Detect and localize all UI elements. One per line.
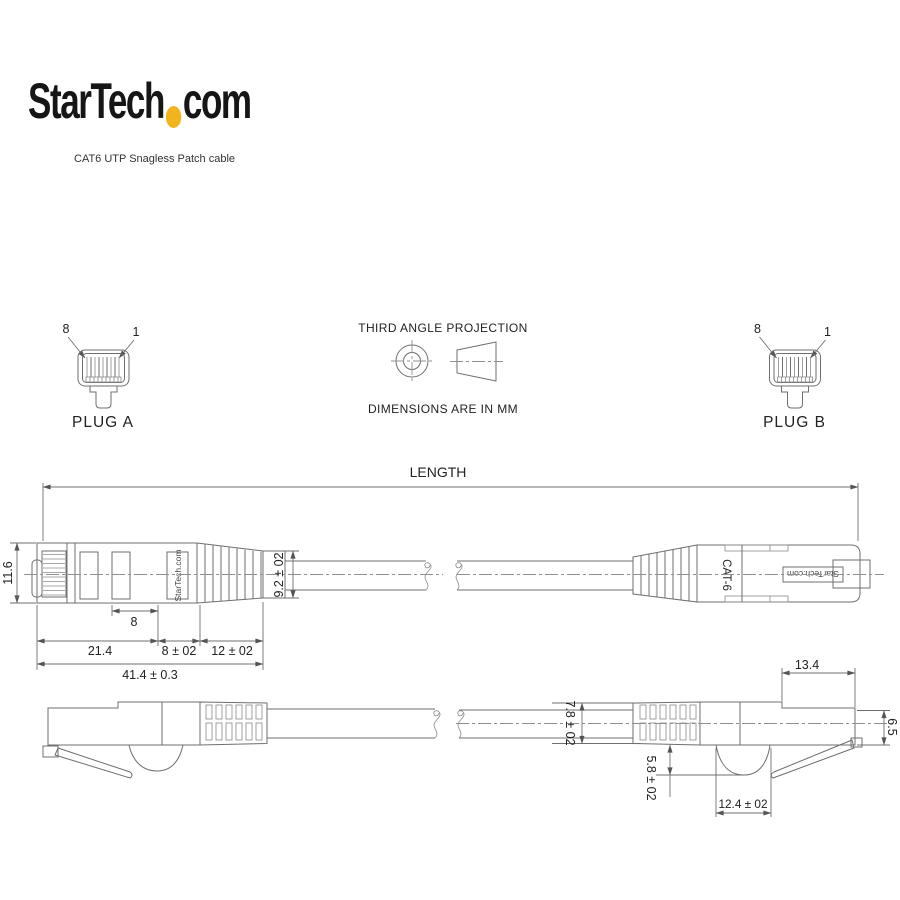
- height-label: 11.6: [1, 561, 15, 584]
- latch-arm: [771, 740, 854, 778]
- plug-b-front-view: 8 1: [754, 322, 831, 431]
- boot-outline: [200, 702, 267, 745]
- cable-break-symbol: [458, 711, 464, 738]
- cable-bottom-view-right: 13.4 7.8 ± 02 5.8 ± 02 12.4 ± 02 6.5: [456, 658, 899, 817]
- body-length-label: 21.4: [88, 644, 112, 658]
- side-plug-marking: StarTech.com: [173, 550, 183, 602]
- cable-bottom-view-left: [43, 702, 440, 778]
- plug-a-pin1-label: 1: [133, 325, 140, 339]
- top-plug-marking: StarTech.com: [787, 569, 839, 579]
- hump-width-label: 12.4 ± 02: [718, 797, 767, 811]
- cable-break-symbol: [456, 563, 462, 590]
- technical-drawing: 8 1: [0, 0, 900, 900]
- end-height-label: 6.5: [885, 718, 899, 735]
- plug-b-latch-tab: [782, 386, 809, 408]
- length-label: LENGTH: [410, 464, 467, 480]
- plug-a-pin8-leader: [68, 337, 85, 358]
- plug-b-pins: [779, 357, 811, 377]
- body-slot-2: [112, 552, 130, 599]
- plug-b-label: PLUG B: [763, 414, 826, 431]
- plug-a-contact-band: [86, 377, 121, 382]
- cable-break-symbol: [425, 563, 431, 590]
- plug-a-pin1-leader: [119, 340, 134, 358]
- latch-depth-label: 5.8 ± 02: [644, 755, 658, 800]
- plug-a-label: PLUG A: [72, 414, 134, 431]
- boot-length-label: 12 ± 02: [211, 644, 253, 658]
- plug-a-contact-ticks: [90, 377, 118, 382]
- body-collar: [67, 543, 75, 603]
- dimensions-note: DIMENSIONS ARE IN MM: [368, 402, 518, 416]
- cat6-marking: CAT-6: [720, 559, 732, 591]
- plug-a-pins: [87, 357, 119, 377]
- inner-width-label: 8: [131, 615, 138, 629]
- plug-b-pin1-leader: [811, 340, 826, 358]
- plug-a-front-view: 8 1: [63, 322, 140, 431]
- plug-a-pin8-label: 8: [63, 322, 70, 336]
- top-notch-strip: [725, 545, 788, 551]
- body-slot-1: [80, 552, 98, 599]
- plug-b-contact-ticks: [782, 377, 810, 382]
- plug-b-pin1-label: 1: [824, 325, 831, 339]
- boot-ribs: [641, 547, 689, 602]
- overall-length-label: 41.4 ± 0.3: [122, 668, 178, 682]
- cable-top-view-right: CAT-6 StarTech.com: [456, 545, 884, 602]
- projection-symbol: THIRD ANGLE PROJECTION DIMENSIONS ARE IN…: [358, 321, 528, 416]
- length-dimension: LENGTH: [43, 464, 858, 541]
- plug-a-latch-tab: [90, 386, 117, 408]
- boot-hump: [716, 745, 770, 775]
- plug-b-contact-band: [778, 377, 813, 382]
- plug-body-outline: [48, 702, 200, 745]
- boot-dia-label: 9.2 ± 02: [272, 552, 286, 597]
- cable-side-view-left: StarTech.com 9.2 ± 02 11.6: [1, 543, 443, 682]
- boot-hump: [129, 745, 183, 771]
- page: StarTechcom CAT6 UTP Snagless Patch cabl…: [0, 0, 900, 900]
- bottom-notch-strip: [725, 596, 788, 602]
- front-length-label: 13.4: [795, 658, 819, 672]
- boot-slots: [640, 705, 696, 740]
- cable-break-symbol: [434, 711, 440, 738]
- plug-body-outline: [37, 543, 285, 603]
- boot-slots: [206, 705, 262, 740]
- plug-b-pin8-leader: [760, 337, 777, 358]
- lower-dimensions: 8 21.4 8 ± 02 12 ± 02 41.4 ± 0.3: [37, 602, 263, 682]
- projection-title: THIRD ANGLE PROJECTION: [358, 321, 528, 335]
- plug-b-pin8-label: 8: [754, 322, 761, 336]
- latch-arm: [55, 748, 132, 778]
- boot-ribs: [205, 544, 261, 602]
- mid-length-label: 8 ± 02: [162, 644, 197, 658]
- cable-diameter-label: 7.8 ± 02: [563, 700, 577, 745]
